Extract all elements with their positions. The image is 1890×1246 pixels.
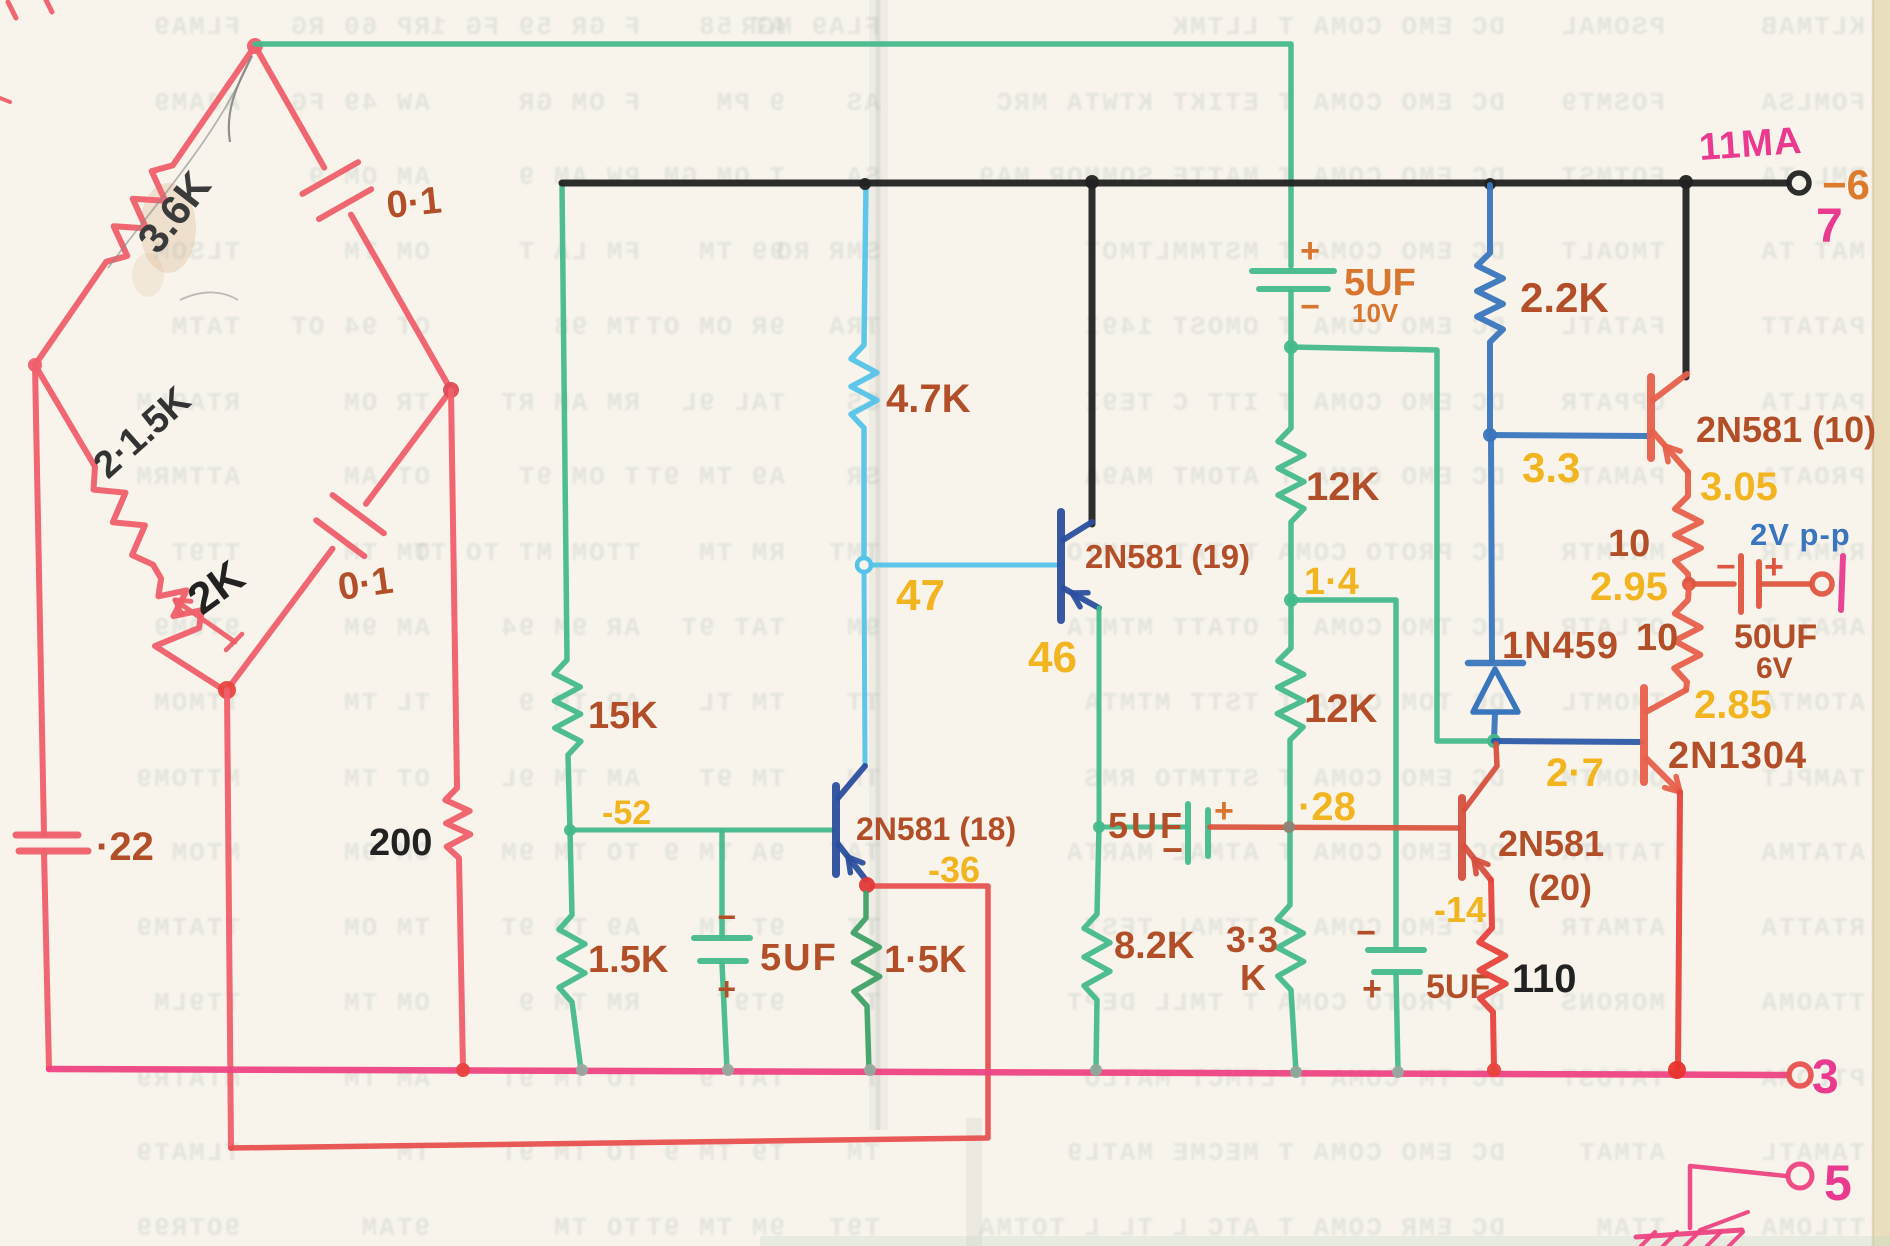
svg-text:T OM GM: T OM GM [662,162,785,192]
svg-text:TATOST: TATOST [1559,1064,1665,1094]
svg-text:−: − [1356,914,1376,952]
svg-text:F OM GR: F OM GR [517,88,640,118]
svg-text:10: 10 [1608,523,1650,565]
svg-text:DC EMO COMA T MECME MATL9: DC EMO COMA T MECME MATL9 [1065,1138,1505,1168]
svg-text:FOMLSA: FOMLSA [1759,88,1865,118]
svg-text:+: + [1300,232,1320,270]
svg-text:ATOMTA: ATOMTA [1759,688,1865,718]
svg-text:AT 58: AT 58 [697,12,785,42]
svg-text:2N1304: 2N1304 [1668,735,1807,777]
svg-text:1.5K: 1.5K [588,939,669,981]
svg-text:0·1: 0·1 [385,179,444,227]
svg-text:ATTMRM: ATTMRM [134,462,240,492]
svg-text:TM OM: TM OM [342,913,430,943]
svg-text:ATMAT: ATMAT [1577,1138,1665,1168]
svg-text:DC EMO COMA T OMOST 149I: DC EMO COMA T OMOST 149I [1083,312,1505,342]
svg-text:−: − [717,899,736,935]
svg-text:MAT TA: MAT TA [1759,237,1865,267]
svg-text:9TAM: 9TAM [360,1213,430,1243]
svg-text:15K: 15K [588,695,658,737]
svg-text:9M TM 9T: 9M TM 9T [644,1213,785,1243]
svg-text:0·1: 0·1 [335,560,395,609]
svg-text:FM LA T: FM LA T [517,237,640,267]
svg-text:2.85: 2.85 [1694,683,1772,727]
svg-text:RM TM: RM TM [697,538,785,568]
svg-text:TAL 9L: TAL 9L [679,388,785,418]
svg-text:OM TM: OM TM [342,988,430,1018]
svg-text:9OTR99: 9OTR99 [134,1213,240,1243]
svg-text:2N581 (10): 2N581 (10) [1696,409,1876,450]
svg-text:+: + [1764,548,1784,586]
svg-text:·22: ·22 [96,825,154,869]
svg-text:9 PM: 9 PM [715,88,785,118]
svg-text:DC EMO COMA T LLTMK: DC EMO COMA T LLTMK [1171,12,1505,42]
svg-text:DC EMO COMA T STTMTO RMS: DC EMO COMA T STTMTO RMS [1083,764,1505,794]
svg-text:DC EMO COMA T MSTMMLTMOT: DC EMO COMA T MSTMMLTMOT [1083,237,1505,267]
svg-text:8.2K: 8.2K [1114,925,1195,967]
svg-text:TR OM: TR OM [342,388,430,418]
svg-text:−: − [1716,548,1736,586]
svg-text:TO TM: TO TM [552,1213,640,1243]
svg-text:AW 49 FG: AW 49 FG [289,88,430,118]
svg-text:MTTOM9: MTTOM9 [134,764,240,794]
svg-text:11MA: 11MA [1698,120,1804,169]
svg-text:AR 9M 94: AR 9M 94 [499,613,640,643]
svg-text:TL TM: TL TM [342,688,430,718]
svg-text:OM TM: OM TM [342,237,430,267]
svg-text:47: 47 [896,571,945,620]
svg-text:F GR 59 FG 1: F GR 59 FG 1 [429,12,640,42]
svg-text:2N581 (19): 2N581 (19) [1085,538,1250,575]
svg-text:3·3: 3·3 [1226,919,1278,960]
svg-text:RM AM RT: RM AM RT [499,388,640,418]
svg-text:+: + [1362,970,1382,1008]
svg-text:TATM: TATM [170,312,240,342]
svg-text:RTATTA: RTATTA [1759,913,1865,943]
svg-text:TM 9T: TM 9T [697,764,785,794]
svg-text:PATATT: PATATT [1759,312,1865,342]
svg-text:T9T: T9T [827,1213,880,1243]
svg-text:200: 200 [369,822,432,864]
svg-text:-36: -36 [928,849,980,890]
svg-text:1·5K: 1·5K [884,939,967,981]
svg-text:6V: 6V [1756,652,1793,685]
svg-text:T OM 9T: T OM 9T [517,462,640,492]
svg-text:9R OM OT: 9R OM OT [644,312,785,342]
svg-text:99 TM: 99 TM [697,237,785,267]
svg-text:PSOMAL: PSOMAL [1559,12,1665,42]
svg-text:1N459: 1N459 [1502,625,1619,667]
svg-text:K: K [1240,957,1266,998]
svg-text:TM: TM [395,1138,430,1168]
svg-text:7: 7 [1816,200,1843,253]
svg-text:-52: -52 [602,794,651,832]
svg-text:5: 5 [1824,1155,1852,1211]
svg-text:TLMAT9: TLMAT9 [134,1138,240,1168]
svg-text:2V p-p: 2V p-p [1750,517,1851,552]
svg-text:1·4: 1·4 [1304,561,1359,603]
svg-text:-14: -14 [1434,889,1486,930]
svg-text:DC EMO COMA T ITT C TE9I: DC EMO COMA T ITT C TE9I [1083,388,1505,418]
svg-text:TRA: TRA [827,312,880,342]
svg-text:TTAOMA: TTAOMA [1759,988,1865,1018]
svg-text:AM 9M: AM 9M [342,613,430,643]
svg-text:4.7K: 4.7K [886,377,971,421]
svg-text:FOSMT9: FOSMT9 [1559,88,1665,118]
svg-text:TAT 9T: TAT 9T [679,613,785,643]
svg-text:AJAM9: AJAM9 [152,88,240,118]
svg-text:3.05: 3.05 [1700,465,1778,509]
svg-text:AS: AS [845,88,880,118]
svg-text:TTAM: TTAM [1595,1213,1665,1243]
svg-text:DC EMO COMA T MATTE SOMMOR MA9: DC EMO COMA T MATTE SOMMOR MA9 [977,162,1505,192]
svg-text:RP 60 RG: RP 60 RG [289,12,430,42]
svg-text:2N581: 2N581 [1498,823,1604,864]
svg-text:FOTMST: FOTMST [1559,162,1665,192]
svg-text:3: 3 [1812,1051,1839,1104]
svg-text:DC EMO COMA T ETIKT KTWTA MRC: DC EMO COMA T ETIKT KTWTA MRC [995,88,1505,118]
svg-text:2N581 (18): 2N581 (18) [856,811,1016,847]
svg-text:+: + [717,971,736,1007]
svg-text:TM TL: TM TL [697,688,785,718]
svg-text:TTOM MT TO TT: TTOM MT TO TT [411,538,640,568]
svg-text:2.2K: 2.2K [1520,274,1609,321]
svg-text:ATATMA: ATATMA [1759,838,1865,868]
svg-text:FLMA9: FLMA9 [152,12,240,42]
svg-text:12K: 12K [1306,465,1379,509]
svg-text:TTLOMA: TTLOMA [1759,1213,1865,1243]
svg-text:·28: ·28 [1298,785,1356,829]
svg-text:10: 10 [1636,617,1678,659]
svg-text:TMOALT: TMOALT [1559,237,1665,267]
svg-text:(20): (20) [1528,867,1592,908]
svg-text:2.95: 2.95 [1590,565,1668,609]
svg-text:46: 46 [1028,633,1077,682]
svg-text:ATMATR: ATMATR [1559,913,1665,943]
svg-text:12K: 12K [1304,687,1377,731]
svg-text:2·7: 2·7 [1546,751,1604,795]
svg-text:50UF: 50UF [1734,618,1817,656]
svg-text:5UF: 5UF [760,937,838,979]
svg-text:−: − [1300,288,1320,326]
svg-text:PW AM 9: PW AM 9 [517,162,640,192]
svg-text:10V: 10V [1352,298,1399,328]
svg-text:110: 110 [1512,957,1577,1001]
svg-text:3.3: 3.3 [1522,444,1580,491]
svg-text:DC EMR COMA T ATC L TL L TOTMA: DC EMR COMA T ATC L TL L TOTMA [977,1213,1505,1243]
svg-text:A9 TM 9T: A9 TM 9T [644,462,785,492]
svg-text:RM TM 9: RM TM 9 [517,988,640,1018]
svg-text:−: − [1162,829,1183,870]
svg-text:OT TM: OT TM [342,764,430,794]
svg-text:TTATM9: TTATM9 [134,913,240,943]
svg-text:KLTMAB: KLTMAB [1759,12,1865,42]
